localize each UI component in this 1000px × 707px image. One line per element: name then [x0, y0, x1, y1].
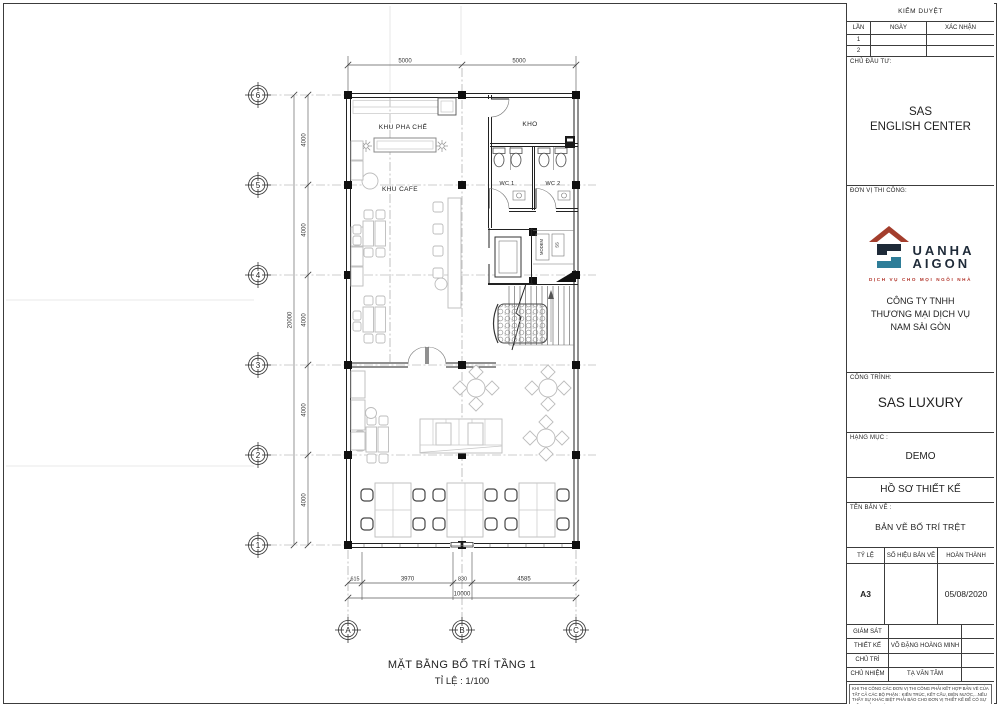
label-khu-pha-che: KHU PHA CHẾ: [379, 121, 428, 131]
dim-left-3: 4000: [302, 313, 308, 327]
release-number-value: [885, 564, 938, 624]
elevator: [488, 228, 576, 285]
personnel-name-giamsat: [889, 625, 962, 638]
grid-col-b: B: [459, 626, 464, 635]
approval-row-2-ngay: [871, 46, 927, 56]
grid-bubbles: 6 5 4 3 2 1 A B C: [245, 82, 589, 643]
drawing-name-value: BẢN VẼ BỐ TRÍ TRỆT: [847, 522, 994, 532]
approval-row-1-xacnhan: [927, 35, 994, 45]
release-table: TỶ LỆ SỐ HIỆU BẢN VẼ HOÀN THÀNH A3 05/08…: [847, 548, 994, 625]
note-text: KHI THI CÔNG CÁC ĐƠN VỊ THI CÔNG PHẢI KẾ…: [849, 684, 992, 705]
dossier-section: HỒ SƠ THIẾT KẾ: [847, 478, 994, 503]
office-furniture: [361, 483, 569, 537]
faint-layout-lines: [6, 6, 461, 466]
drawing-name-label: TÊN BẢN VẼ :: [850, 505, 891, 511]
dossier-title: HỒ SƠ THIẾT KẾ: [847, 478, 994, 502]
approval-table: KIỂM DUYỆT LẦN NGÀY XÁC NHẬN 1 2: [847, 3, 994, 57]
project-name: SAS LUXURY: [847, 395, 994, 410]
logo-brand-line2: AIGON: [913, 257, 975, 270]
dim-top-2: 5000: [512, 59, 526, 65]
release-col-scale: TỶ LỆ: [847, 548, 885, 563]
dim-left-total: 20000: [288, 311, 294, 328]
personnel-name-chunhiem: TẠ VĂN TÂM: [889, 668, 962, 681]
contractor-label: ĐƠN VỊ THI CÔNG:: [850, 188, 907, 194]
release-scale-value: A3: [847, 564, 885, 624]
personnel-label-giamsat: GIÁM SÁT: [847, 625, 889, 638]
personnel-label-thietke: THIẾT KẾ: [847, 639, 889, 652]
approval-row-2: 2: [847, 46, 871, 56]
dim-bottom-2: 3970: [401, 577, 415, 583]
release-date-value: 05/08/2020: [938, 564, 994, 624]
dim-bottom-1: 615: [351, 577, 360, 583]
dim-bottom-total: 10000: [454, 592, 471, 598]
approval-col-xacnhan: XÁC NHẬN: [927, 22, 994, 34]
company-line2: THƯƠNG MẠI DỊCH VỤ: [847, 308, 994, 321]
personnel-sign-chunhiem: [962, 668, 994, 681]
approval-col-ngay: NGÀY: [871, 22, 927, 34]
project-label: CÔNG TRÌNH:: [850, 375, 892, 381]
personnel-sign-chutri: [962, 654, 994, 667]
grid-col-a: A: [345, 626, 351, 635]
dim-left-2: 4000: [302, 223, 308, 237]
contractor-section: ĐƠN VỊ THI CÔNG: UANHA AIGON DỊCH VỤ CHO…: [847, 186, 994, 373]
category-value: DEMO: [847, 451, 994, 462]
plan-scale: TỈ LỆ : 1/100: [435, 675, 489, 687]
label-wc1: WC 1: [500, 181, 515, 187]
planter: [494, 304, 548, 343]
label-ss: SS: [555, 242, 560, 248]
label-kho: KHO: [522, 121, 537, 128]
release-col-number: SỐ HIỆU BẢN VẼ: [885, 548, 938, 563]
grid-row-4: 4: [256, 271, 261, 280]
plan-caption: MẶT BẰNG BỐ TRÍ TẦNG 1 TỈ LỆ : 1/100: [388, 657, 536, 687]
drawing-sheet: 5000 5000 4000 4000 4000 4000 4000 20000…: [0, 0, 1000, 707]
approval-col-lan: LẦN: [847, 22, 871, 34]
personnel-sign-giamsat: [962, 625, 994, 638]
personnel-name-chutri: [889, 654, 962, 667]
personnel-label-chunhiem: CHỦ NHIỆM: [847, 668, 889, 681]
grid-row-1: 1: [256, 541, 261, 550]
company-line3: NAM SÀI GÒN: [847, 321, 994, 334]
dim-bottom-3: 830: [458, 577, 467, 583]
dim-top-1: 5000: [398, 59, 412, 65]
release-col-date: HOÀN THÀNH: [938, 548, 994, 563]
owner-label: CHỦ ĐẦU TƯ:: [850, 59, 892, 65]
dim-left-1: 4000: [302, 133, 308, 147]
personnel-sign-thietke: [962, 639, 994, 652]
grid-row-2: 2: [256, 451, 261, 460]
dim-left-5: 4000: [302, 493, 308, 507]
grid-row-5: 5: [256, 181, 261, 190]
category-label: HẠNG MỤC :: [850, 435, 888, 441]
title-block: KIỂM DUYỆT LẦN NGÀY XÁC NHẬN 1 2 CHỦ ĐẦU…: [846, 3, 994, 704]
personnel-name-thietke: VÕ ĐẶNG HOÀNG MINH: [889, 639, 962, 652]
plan-title: MẶT BẰNG BỐ TRÍ TẦNG 1: [388, 657, 536, 671]
personnel-label-chutri: CHỦ TRÌ: [847, 654, 889, 667]
label-wc2: WC 2: [546, 181, 561, 187]
personnel-table: GIÁM SÁT THIẾT KẾ VÕ ĐẶNG HOÀNG MINH CHỦ…: [847, 625, 994, 682]
owner-line2: ENGLISH CENTER: [847, 120, 994, 135]
grid-row-6: 6: [256, 91, 261, 100]
floor-plan: 5000 5000 4000 4000 4000 4000 4000 20000…: [0, 0, 845, 707]
contractor-logo: UANHA AIGON DỊCH VỤ CHO MỌI NGÔI NHÀ: [847, 224, 994, 282]
approval-row-1-ngay: [871, 35, 927, 45]
approval-row-2-xacnhan: [927, 46, 994, 56]
project-section: CÔNG TRÌNH: SAS LUXURY: [847, 373, 994, 433]
logo-house-s-icon: [867, 224, 911, 270]
dim-left-4: 4000: [302, 403, 308, 417]
note-section: KHI THI CÔNG CÁC ĐƠN VỊ THI CÔNG PHẢI KẾ…: [847, 682, 994, 704]
label-khu-cafe: KHU CAFE: [382, 186, 418, 193]
approval-title: KIỂM DUYỆT: [847, 3, 994, 22]
drawing-name-section: TÊN BẢN VẼ : BẢN VẼ BỐ TRÍ TRỆT: [847, 503, 994, 548]
owner-section: CHỦ ĐẦU TƯ: SAS ENGLISH CENTER: [847, 57, 994, 186]
category-section: HẠNG MỤC : DEMO: [847, 433, 994, 478]
label-modem: MODEM: [539, 238, 544, 255]
dim-bottom-4: 4585: [517, 577, 531, 583]
company-line1: CÔNG TY TNHH: [847, 295, 994, 308]
approval-row-1: 1: [847, 35, 871, 45]
grid-col-c: C: [573, 626, 579, 635]
owner-line1: SAS: [847, 105, 994, 120]
logo-tagline: DỊCH VỤ CHO MỌI NGÔI NHÀ: [847, 277, 994, 282]
grid-row-3: 3: [256, 361, 261, 370]
